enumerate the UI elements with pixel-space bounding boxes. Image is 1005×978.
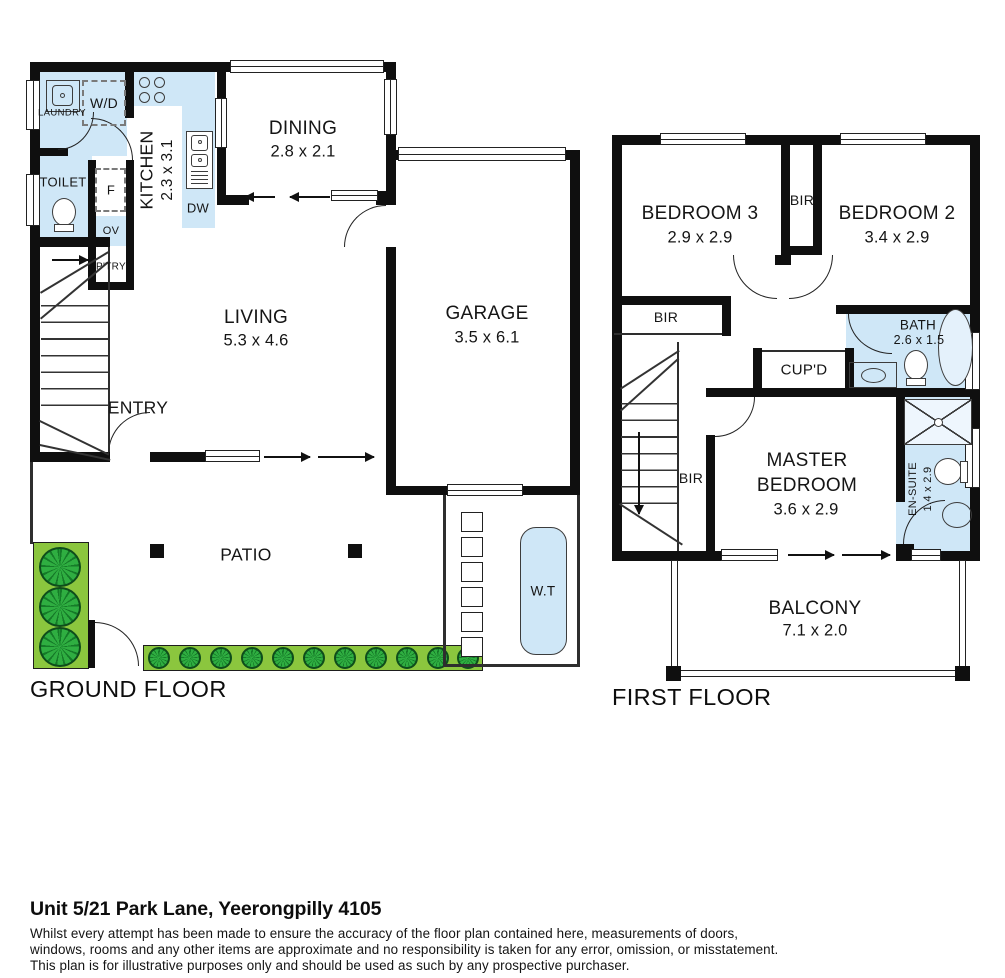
step-square — [461, 562, 483, 582]
step-square — [461, 587, 483, 607]
bush-icon — [272, 647, 294, 669]
dining-dims: 2.8 x 2.1 — [270, 143, 335, 162]
garage-wall — [386, 247, 396, 495]
bush-icon — [334, 647, 356, 669]
step-square — [461, 512, 483, 532]
bush-icon — [39, 547, 81, 587]
fence-line — [443, 664, 580, 667]
patio-post — [348, 544, 362, 558]
disclaimer-line: This plan is for illustrative purposes o… — [30, 958, 630, 973]
arrow-icon — [264, 456, 310, 458]
wall — [126, 160, 134, 290]
bush-icon — [179, 647, 201, 669]
kitchen-label: KITCHEN — [137, 131, 158, 210]
bush-icon — [39, 587, 81, 627]
wall — [781, 135, 790, 255]
disclaimer-line: Whilst every attempt has been made to en… — [30, 926, 738, 941]
dining-label: DINING — [269, 118, 337, 140]
first-floor-title: FIRST FLOOR — [612, 684, 771, 711]
gate-door-arc — [95, 622, 139, 666]
bedroom3-dims: 2.9 x 2.9 — [667, 229, 732, 248]
window — [384, 79, 397, 135]
toilet-label: TOILET — [39, 175, 86, 190]
sink-icon — [942, 502, 972, 528]
arrow-icon — [290, 196, 330, 198]
cupboard-label: CUP'D — [781, 362, 828, 379]
toilet-tank — [960, 461, 968, 483]
entry-label: ENTRY — [108, 398, 169, 419]
living-dims: 5.3 x 4.6 — [223, 332, 288, 351]
step-square — [461, 637, 483, 657]
wall — [125, 62, 134, 118]
arrow-icon — [842, 554, 890, 556]
patio-post — [150, 544, 164, 558]
toilet-tank — [906, 378, 926, 386]
fence-line — [443, 495, 446, 667]
wall — [706, 435, 715, 560]
patio-label: PATIO — [220, 545, 271, 566]
balcony-rail — [671, 560, 678, 672]
window — [26, 80, 40, 130]
wall — [722, 296, 731, 336]
master-label-1: MASTER — [767, 450, 848, 472]
toilet-icon — [934, 458, 962, 485]
balcony-label: BALCONY — [769, 598, 862, 620]
fridge-label: F — [107, 183, 115, 198]
wall — [813, 135, 822, 255]
bedroom2-dims: 3.4 x 2.9 — [864, 229, 929, 248]
bush-icon — [148, 647, 170, 669]
arrow-icon — [318, 456, 374, 458]
closet-line — [614, 333, 722, 335]
bush-icon — [396, 647, 418, 669]
toilet-icon — [52, 198, 76, 226]
ensuite-dims: 1.4 x 2.9 — [922, 467, 934, 512]
ground-floor-title: GROUND FLOOR — [30, 676, 227, 703]
dishwasher-label: DW — [187, 201, 209, 216]
master-dims: 3.6 x 2.9 — [773, 501, 838, 520]
window — [215, 98, 227, 148]
window — [660, 133, 746, 145]
ensuite-label: EN-SUITE — [907, 462, 919, 516]
water-tank-label: W.T — [531, 584, 556, 599]
gate-post — [88, 620, 95, 668]
window — [840, 133, 926, 145]
stair-direction-arrow — [52, 259, 88, 261]
garage-wall — [570, 150, 580, 495]
disclaimer-line: windows, rooms and any other items are a… — [30, 942, 778, 957]
stair-direction-arrow — [638, 432, 640, 514]
balcony-dims: 7.1 x 2.0 — [782, 622, 847, 641]
arrow-icon — [788, 554, 834, 556]
fence-line — [577, 495, 580, 667]
window — [721, 549, 778, 561]
window — [230, 60, 384, 73]
address-title: Unit 5/21 Park Lane, Yeerongpilly 4105 — [30, 898, 381, 921]
fence-line — [30, 462, 33, 544]
arrow-icon — [245, 196, 275, 198]
laundry-label: LAUNDRY — [38, 108, 86, 119]
balcony-rail — [671, 670, 966, 677]
window — [911, 549, 941, 561]
vanity-icon — [849, 362, 897, 388]
closet-line — [762, 350, 845, 352]
floor-plan-canvas: LAUNDRY W/D TOILET F OV P'TRY KITCHEN 2.… — [0, 0, 1005, 978]
door-arc — [733, 255, 777, 299]
master-label-2: BEDROOM — [757, 475, 857, 497]
oven-label: OV — [103, 225, 120, 237]
sliding-panel — [331, 190, 378, 201]
wall — [150, 452, 206, 462]
bathtub-icon — [938, 309, 973, 386]
toilet-tank — [54, 224, 74, 232]
window — [26, 174, 40, 226]
wall — [706, 388, 980, 397]
living-label: LIVING — [224, 307, 288, 329]
shower-icon — [904, 399, 972, 445]
bush-icon — [365, 647, 387, 669]
garage-door — [398, 147, 566, 161]
window — [205, 450, 260, 462]
pantry-label: P'TRY — [96, 262, 126, 273]
step-square — [461, 612, 483, 632]
garage-wall — [386, 150, 396, 205]
washer-dryer-label: W/D — [90, 95, 118, 111]
bush-icon — [303, 647, 325, 669]
bir-top-label: BIR — [790, 192, 814, 208]
kitchen-sink-icon — [186, 131, 213, 189]
bush-icon — [210, 647, 232, 669]
wall — [217, 62, 226, 100]
door-arc — [715, 397, 755, 437]
bedroom3-label: BEDROOM 3 — [642, 203, 759, 225]
bush-icon — [39, 627, 81, 667]
kitchen-dims: 2.3 x 3.1 — [159, 139, 177, 200]
bath-dims: 2.6 x 1.5 — [894, 333, 945, 347]
balcony-corner-post — [666, 666, 681, 681]
door-arc — [789, 255, 833, 299]
wall — [30, 237, 110, 247]
door-arc — [344, 205, 386, 247]
bath-label: BATH — [900, 318, 936, 333]
step-square — [461, 537, 483, 557]
wall — [88, 282, 134, 290]
balcony-corner-post — [955, 666, 970, 681]
bedroom2-label: BEDROOM 2 — [839, 203, 956, 225]
garage-dims: 3.5 x 6.1 — [454, 329, 519, 348]
wall — [612, 296, 730, 305]
wall — [781, 246, 822, 255]
bir-mid-label: BIR — [654, 309, 678, 325]
window — [447, 484, 523, 496]
toilet-icon — [904, 350, 928, 380]
garage-label: GARAGE — [445, 303, 528, 325]
balcony-rail — [959, 560, 966, 672]
bir-lower-label: BIR — [679, 470, 703, 486]
bush-icon — [241, 647, 263, 669]
